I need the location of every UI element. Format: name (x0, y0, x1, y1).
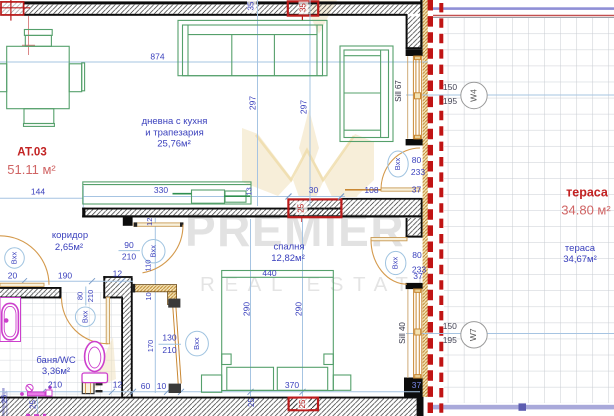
svg-text:10: 10 (157, 381, 167, 391)
svg-text:37: 37 (412, 380, 422, 390)
svg-text:Sill 67: Sill 67 (394, 80, 403, 102)
svg-text:Bxx: Bxx (9, 252, 18, 265)
svg-text:12: 12 (113, 379, 123, 389)
svg-text:210: 210 (122, 251, 136, 261)
svg-text:35: 35 (247, 1, 256, 10)
svg-text:37: 37 (412, 184, 422, 194)
svg-text:874: 874 (150, 51, 164, 61)
svg-text:Bxx: Bxx (192, 337, 201, 350)
svg-text:20: 20 (8, 270, 18, 280)
svg-text:12,82м²: 12,82м² (271, 253, 304, 264)
svg-text:35: 35 (299, 3, 308, 12)
svg-text:3,36м²: 3,36м² (42, 366, 70, 377)
svg-text:233: 233 (411, 167, 425, 177)
svg-text:195: 195 (443, 96, 457, 106)
svg-text:АТ.03: АТ.03 (17, 147, 46, 159)
svg-text:тераса: тераса (565, 243, 596, 254)
svg-text:коридор: коридор (52, 230, 88, 241)
svg-text:30: 30 (309, 185, 319, 195)
svg-text:190: 190 (58, 270, 72, 280)
svg-text:Bxx: Bxx (80, 310, 89, 323)
svg-text:80: 80 (412, 155, 422, 165)
svg-text:195: 195 (443, 335, 457, 345)
svg-text:34,67м²: 34,67м² (563, 254, 596, 265)
svg-text:330: 330 (154, 185, 168, 195)
svg-text:440: 440 (262, 268, 276, 278)
svg-text:13: 13 (244, 187, 253, 195)
svg-text:25: 25 (298, 399, 307, 408)
svg-text:130: 130 (162, 332, 176, 342)
svg-text:W4: W4 (468, 89, 478, 102)
svg-text:80: 80 (412, 250, 422, 260)
svg-text:370: 370 (285, 380, 299, 390)
svg-text:60: 60 (141, 381, 151, 391)
svg-text:баня/WC: баня/WC (36, 355, 76, 366)
svg-text:150: 150 (443, 321, 457, 331)
svg-text:290: 290 (242, 302, 252, 316)
svg-text:и трапезария: и трапезария (145, 127, 203, 138)
svg-text:W7: W7 (468, 328, 478, 341)
svg-text:90: 90 (124, 240, 134, 250)
svg-text:170: 170 (146, 340, 155, 353)
svg-text:144: 144 (31, 186, 45, 196)
svg-text:12: 12 (113, 268, 123, 278)
svg-text:25: 25 (29, 400, 38, 409)
svg-text:Bxx: Bxx (393, 158, 402, 171)
svg-text:150: 150 (443, 82, 457, 92)
svg-text:12: 12 (145, 218, 154, 226)
svg-text:10: 10 (144, 292, 153, 300)
svg-text:25: 25 (247, 398, 256, 407)
svg-text:297: 297 (248, 96, 258, 110)
svg-text:80: 80 (75, 292, 84, 300)
svg-text:тераса: тераса (566, 185, 609, 199)
svg-text:25: 25 (0, 395, 8, 403)
svg-text:210: 210 (86, 290, 95, 303)
svg-text:290: 290 (294, 302, 304, 316)
svg-text:210: 210 (162, 345, 176, 355)
svg-text:297: 297 (298, 100, 308, 114)
svg-text:спалня: спалня (273, 242, 304, 253)
svg-text:37: 37 (413, 271, 423, 281)
svg-text:Bxx: Bxx (391, 257, 400, 270)
svg-text:Sill 40: Sill 40 (398, 322, 407, 344)
svg-text:34.80 м²: 34.80 м² (561, 202, 611, 217)
svg-text:дневна с кухня: дневна с кухня (142, 116, 208, 127)
svg-text:2,65м²: 2,65м² (55, 242, 83, 253)
svg-text:25,76м²: 25,76м² (157, 138, 190, 149)
svg-text:51.11 м²: 51.11 м² (7, 162, 56, 177)
svg-text:108: 108 (364, 185, 378, 195)
svg-text:110: 110 (144, 260, 153, 272)
svg-text:25: 25 (297, 203, 306, 212)
svg-text:Bxx: Bxx (148, 245, 157, 258)
svg-text:210: 210 (48, 379, 62, 389)
